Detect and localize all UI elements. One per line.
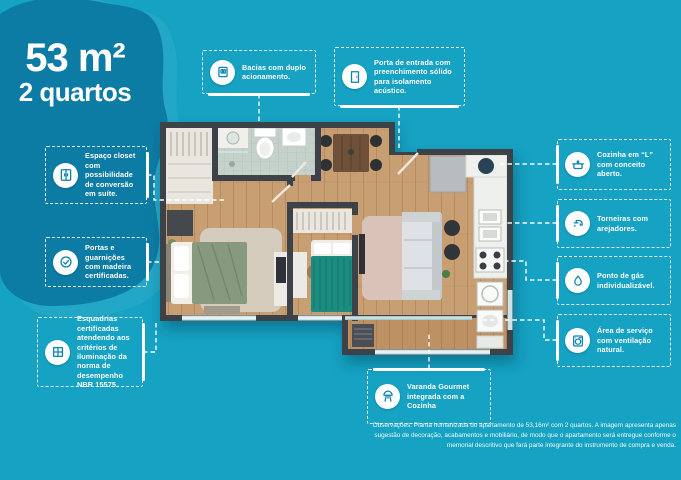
door-icon [342, 64, 367, 89]
bench [204, 306, 240, 314]
fridge [430, 156, 466, 192]
desk [292, 252, 307, 298]
callout-label: Torneiras com arejadores. [597, 214, 663, 233]
callout-certified-doors: Portas e guarnições com madeira certific… [45, 237, 147, 287]
tv [276, 257, 286, 283]
cooking-pot-icon [565, 152, 590, 177]
callout-gourmet-balcony: Varanda Gourmet integrada com a Cozinha [367, 369, 491, 424]
armchair [444, 220, 460, 236]
callout-label: Portas e guarnições com madeira certific… [85, 243, 139, 281]
callout-window-frames: Esquadrias certificadas atendendo aos cr… [37, 317, 143, 387]
callout-label: Porta de entrada com preenchimento sólid… [374, 58, 457, 96]
grill-icon [375, 384, 400, 409]
service-area [477, 282, 503, 348]
window-icon [45, 340, 70, 365]
callout-dual-flush: Bacias com duplo acionamento. [202, 50, 316, 94]
legal-disclaimer: Observações: Planta humanizada do aparta… [358, 421, 676, 451]
washing-machine-icon [565, 328, 590, 353]
callout-label: Ponto de gás individualizável. [597, 271, 663, 290]
floor-plan [163, 125, 513, 355]
callout-label: Esquadrias certificadas atendendo aos cr… [77, 314, 135, 390]
dual-flush-icon [210, 60, 235, 85]
closet [292, 209, 352, 233]
headboard [166, 244, 171, 302]
cooktop [476, 248, 504, 272]
faucet-icon [565, 211, 590, 236]
callout-closet: Espaço closet com possibilidade de conve… [45, 146, 147, 204]
closet-icon [53, 163, 78, 188]
toilet-tank [254, 128, 276, 137]
callout-entry-door: Porta de entrada com preenchimento sólid… [334, 47, 465, 106]
tv-dresser [167, 210, 193, 236]
callout-label: Bacias com duplo acionamento. [242, 63, 308, 82]
gas-flame-icon [565, 268, 590, 293]
plant [442, 270, 450, 278]
certified-check-icon [53, 250, 78, 275]
tv [359, 234, 365, 274]
callout-gas-point: Ponto de gás individualizável. [557, 256, 671, 305]
area-value: 53 m² [6, 38, 144, 78]
callout-faucets: Torneiras com arejadores. [557, 199, 671, 248]
bedroom-2 [292, 209, 354, 312]
balcony [352, 324, 374, 347]
callout-label: Cozinha em “L” com conceito aberto. [597, 150, 663, 178]
ac-unit [352, 324, 374, 347]
armchair [444, 244, 460, 260]
plan-title: 53 m² 2 quartos [6, 38, 144, 108]
callout-label: Varanda Gourmet integrada com a Cozinha [407, 382, 483, 410]
callout-label: Espaço closet com possibilidade de conve… [85, 151, 139, 198]
bedrooms-value: 2 quartos [6, 78, 144, 108]
bowl [478, 158, 494, 174]
callout-kitchen: Cozinha em “L” com conceito aberto. [557, 139, 671, 190]
drain [229, 161, 235, 167]
marketing-floorplan-page: 53 m² 2 quartos Bacias com duplo acionam… [0, 0, 681, 480]
callout-service-area: Área de serviço com ventilação natural. [557, 314, 671, 367]
callout-label: Área de serviço com ventilação natural. [597, 326, 663, 354]
